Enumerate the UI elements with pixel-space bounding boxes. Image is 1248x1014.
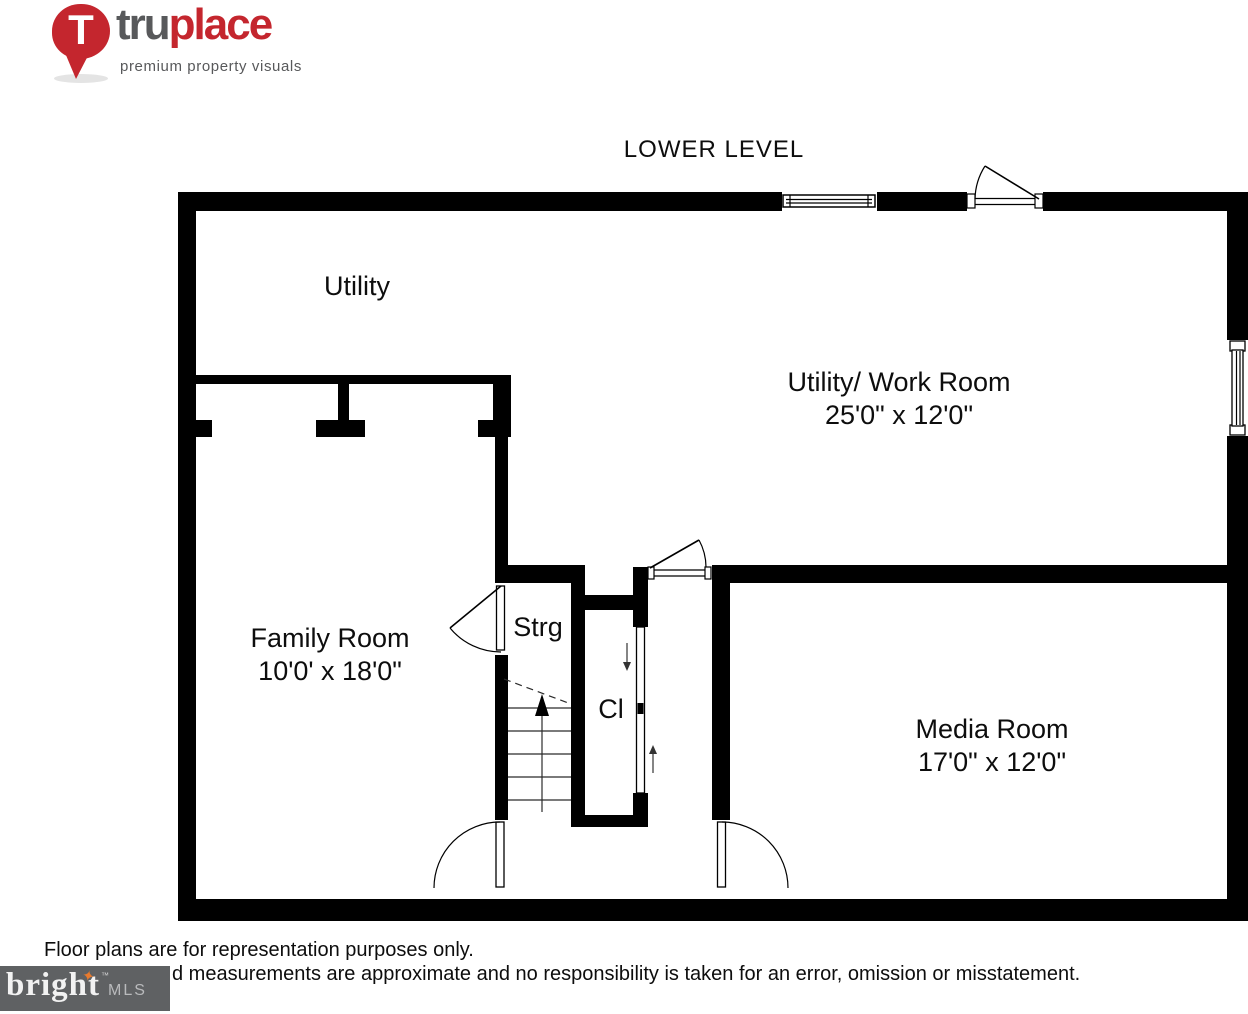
room-name: Family Room — [180, 622, 480, 655]
mls-suffix-text: MLS — [108, 982, 147, 1000]
bright-mls-logo: bright ✦ ™ MLS — [0, 966, 170, 1011]
room-label-closet: Cl — [551, 693, 671, 726]
room-name: Media Room — [822, 713, 1162, 746]
disclaimer-line2: d measurements are approximate and no re… — [172, 963, 1080, 986]
room-label-family: Family Room 10'0' x 18'0" — [180, 622, 480, 688]
room-label-utility: Utility — [257, 270, 457, 303]
floor-plan-drawing — [0, 0, 1248, 1014]
room-label-utility-work: Utility/ Work Room 25'0" x 12'0" — [719, 366, 1079, 432]
trademark-symbol: ™ — [101, 971, 109, 980]
room-dimensions: 10'0' x 18'0" — [180, 655, 480, 688]
door-media-bottom — [718, 822, 789, 888]
door-top-exterior — [967, 166, 1043, 208]
disclaimer-line1: Floor plans are for representation purpo… — [44, 939, 474, 962]
door-family-bottom — [434, 822, 504, 888]
window-top — [783, 195, 875, 207]
room-label-storage: Strg — [468, 611, 608, 644]
room-name: Strg — [468, 611, 608, 644]
floor-plan-page: T truplace premium property visuals LOWE… — [0, 0, 1248, 1014]
room-name: Utility — [257, 270, 457, 303]
room-name: Utility/ Work Room — [719, 366, 1079, 399]
room-dimensions: 17'0" x 12'0" — [822, 746, 1162, 779]
door-media-top — [648, 540, 711, 579]
room-dimensions: 25'0" x 12'0" — [719, 399, 1079, 432]
room-name: Cl — [551, 693, 671, 726]
room-label-media: Media Room 17'0" x 12'0" — [822, 713, 1162, 779]
window-right — [1230, 341, 1245, 435]
